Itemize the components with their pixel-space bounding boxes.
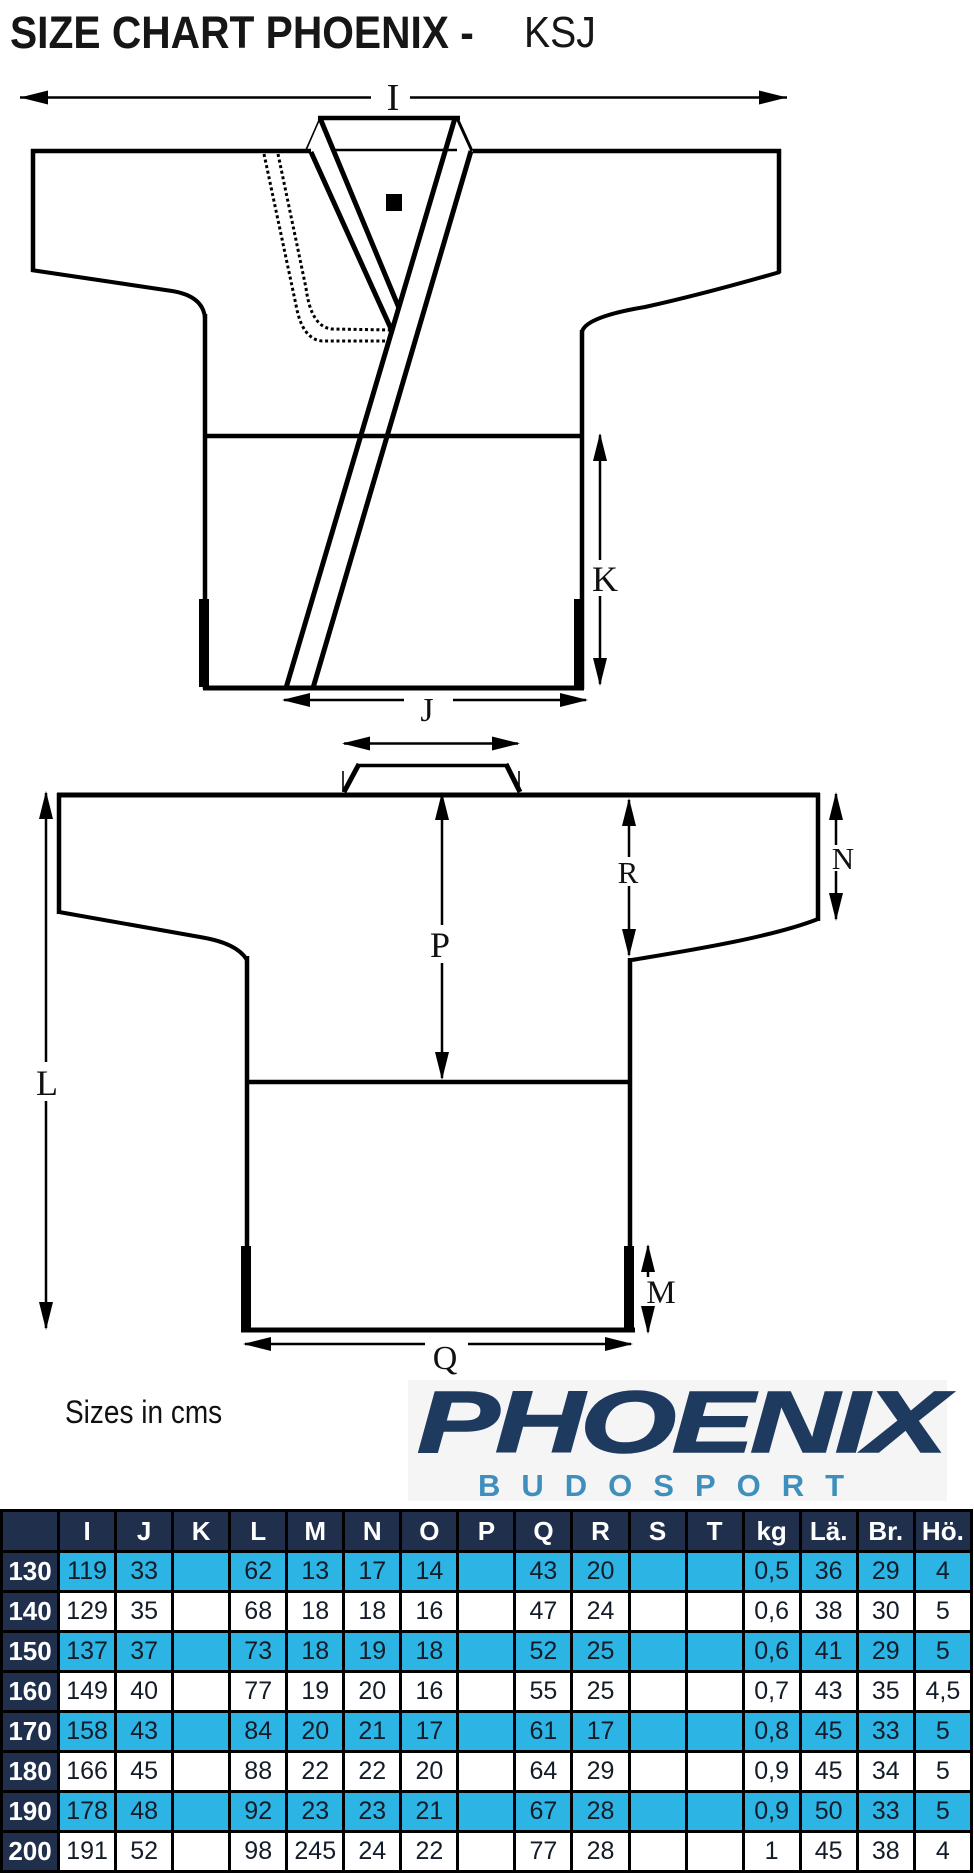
svg-text:M: M (646, 1275, 675, 1311)
svg-text:Q: Q (433, 1340, 458, 1375)
svg-text:K: K (592, 559, 618, 599)
svg-text:L: L (36, 1063, 58, 1103)
svg-text:P: P (430, 925, 450, 965)
svg-text:R: R (618, 855, 639, 890)
svg-text:J: J (420, 692, 433, 729)
svg-text:I: I (387, 77, 400, 119)
svg-text:N: N (832, 841, 854, 876)
